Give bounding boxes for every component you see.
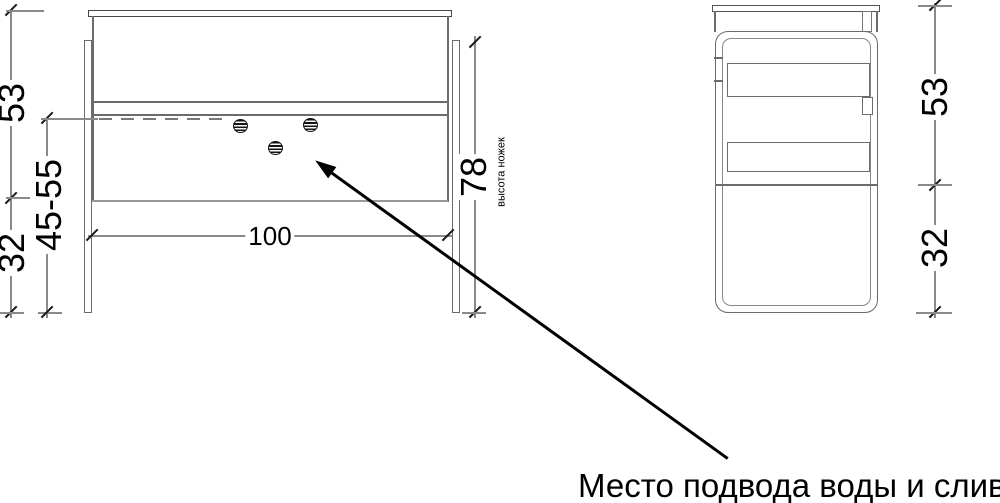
dim-side-upper-label: 53	[916, 74, 954, 120]
floor-ext-right	[462, 312, 486, 314]
side-panel-left-edge	[714, 11, 716, 32]
side-panel-upper	[727, 63, 870, 97]
connection-ext-line	[41, 118, 98, 120]
side-countertop	[712, 5, 880, 12]
water-hole-right	[303, 118, 318, 132]
side-divider-line	[715, 184, 878, 186]
dim-side-ext-top	[918, 5, 952, 7]
technical-drawing: 100 53 32 45-55 78 высота ножек 53 32	[0, 0, 1000, 503]
side-frame-joint-upper	[714, 57, 723, 59]
front-body-bottom-edge	[92, 200, 448, 202]
front-leg-left	[84, 40, 92, 313]
leader-arrow	[316, 161, 729, 459]
front-countertop	[88, 10, 452, 17]
side-panel-right-edge	[876, 11, 878, 32]
side-top-drop-edge	[862, 11, 872, 32]
front-apron-line-lower	[92, 114, 448, 116]
dim-width-label: 100	[245, 222, 294, 250]
connection-level-dashed-line	[99, 118, 223, 120]
leader-arrow-line	[326, 168, 728, 459]
side-frame-joint-lower	[714, 80, 723, 82]
front-apron-line-upper	[92, 101, 448, 103]
front-body-right-edge	[447, 16, 449, 202]
floor-ext-left-a	[0, 312, 24, 314]
dim-lower-height-label: 32	[0, 230, 31, 276]
dim-connection-range-label: 45-55	[30, 156, 68, 254]
dim-legs-height-label: 78	[455, 154, 493, 200]
dim-side-ext-mid	[918, 184, 952, 186]
side-bracket	[862, 97, 873, 115]
drain-hole-center	[268, 141, 283, 155]
dim-side-ext-bottom	[916, 312, 952, 314]
dim-left-ext-top	[6, 10, 44, 12]
water-hole-left	[233, 119, 248, 133]
floor-ext-left-b	[38, 312, 62, 314]
dim-upper-height-label: 53	[0, 80, 31, 126]
side-panel-lower	[727, 142, 870, 172]
callout-water-drain-label: Место подвода воды и слив	[578, 469, 1000, 502]
legs-height-caption: высота ножек	[497, 137, 508, 207]
front-body-left-edge	[92, 16, 94, 202]
dim-side-lower-label: 32	[916, 225, 954, 271]
